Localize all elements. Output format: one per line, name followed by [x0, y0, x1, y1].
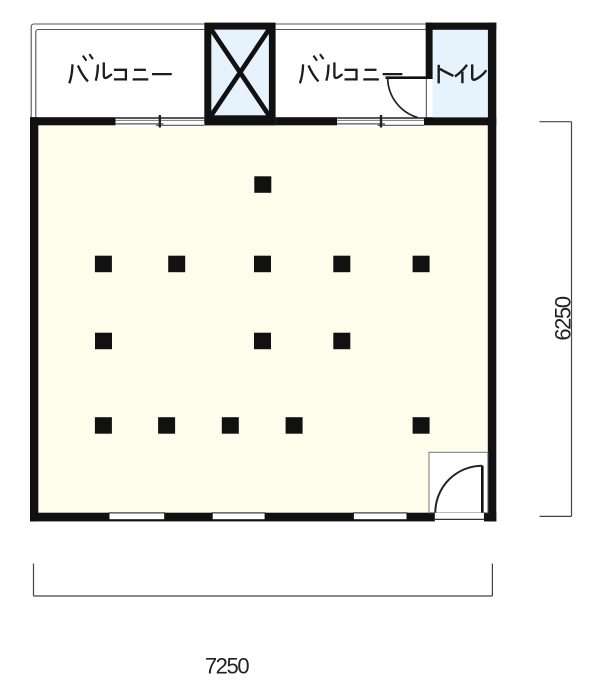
svg-text:6250: 6250: [551, 296, 576, 341]
svg-text:7250: 7250: [205, 654, 250, 679]
